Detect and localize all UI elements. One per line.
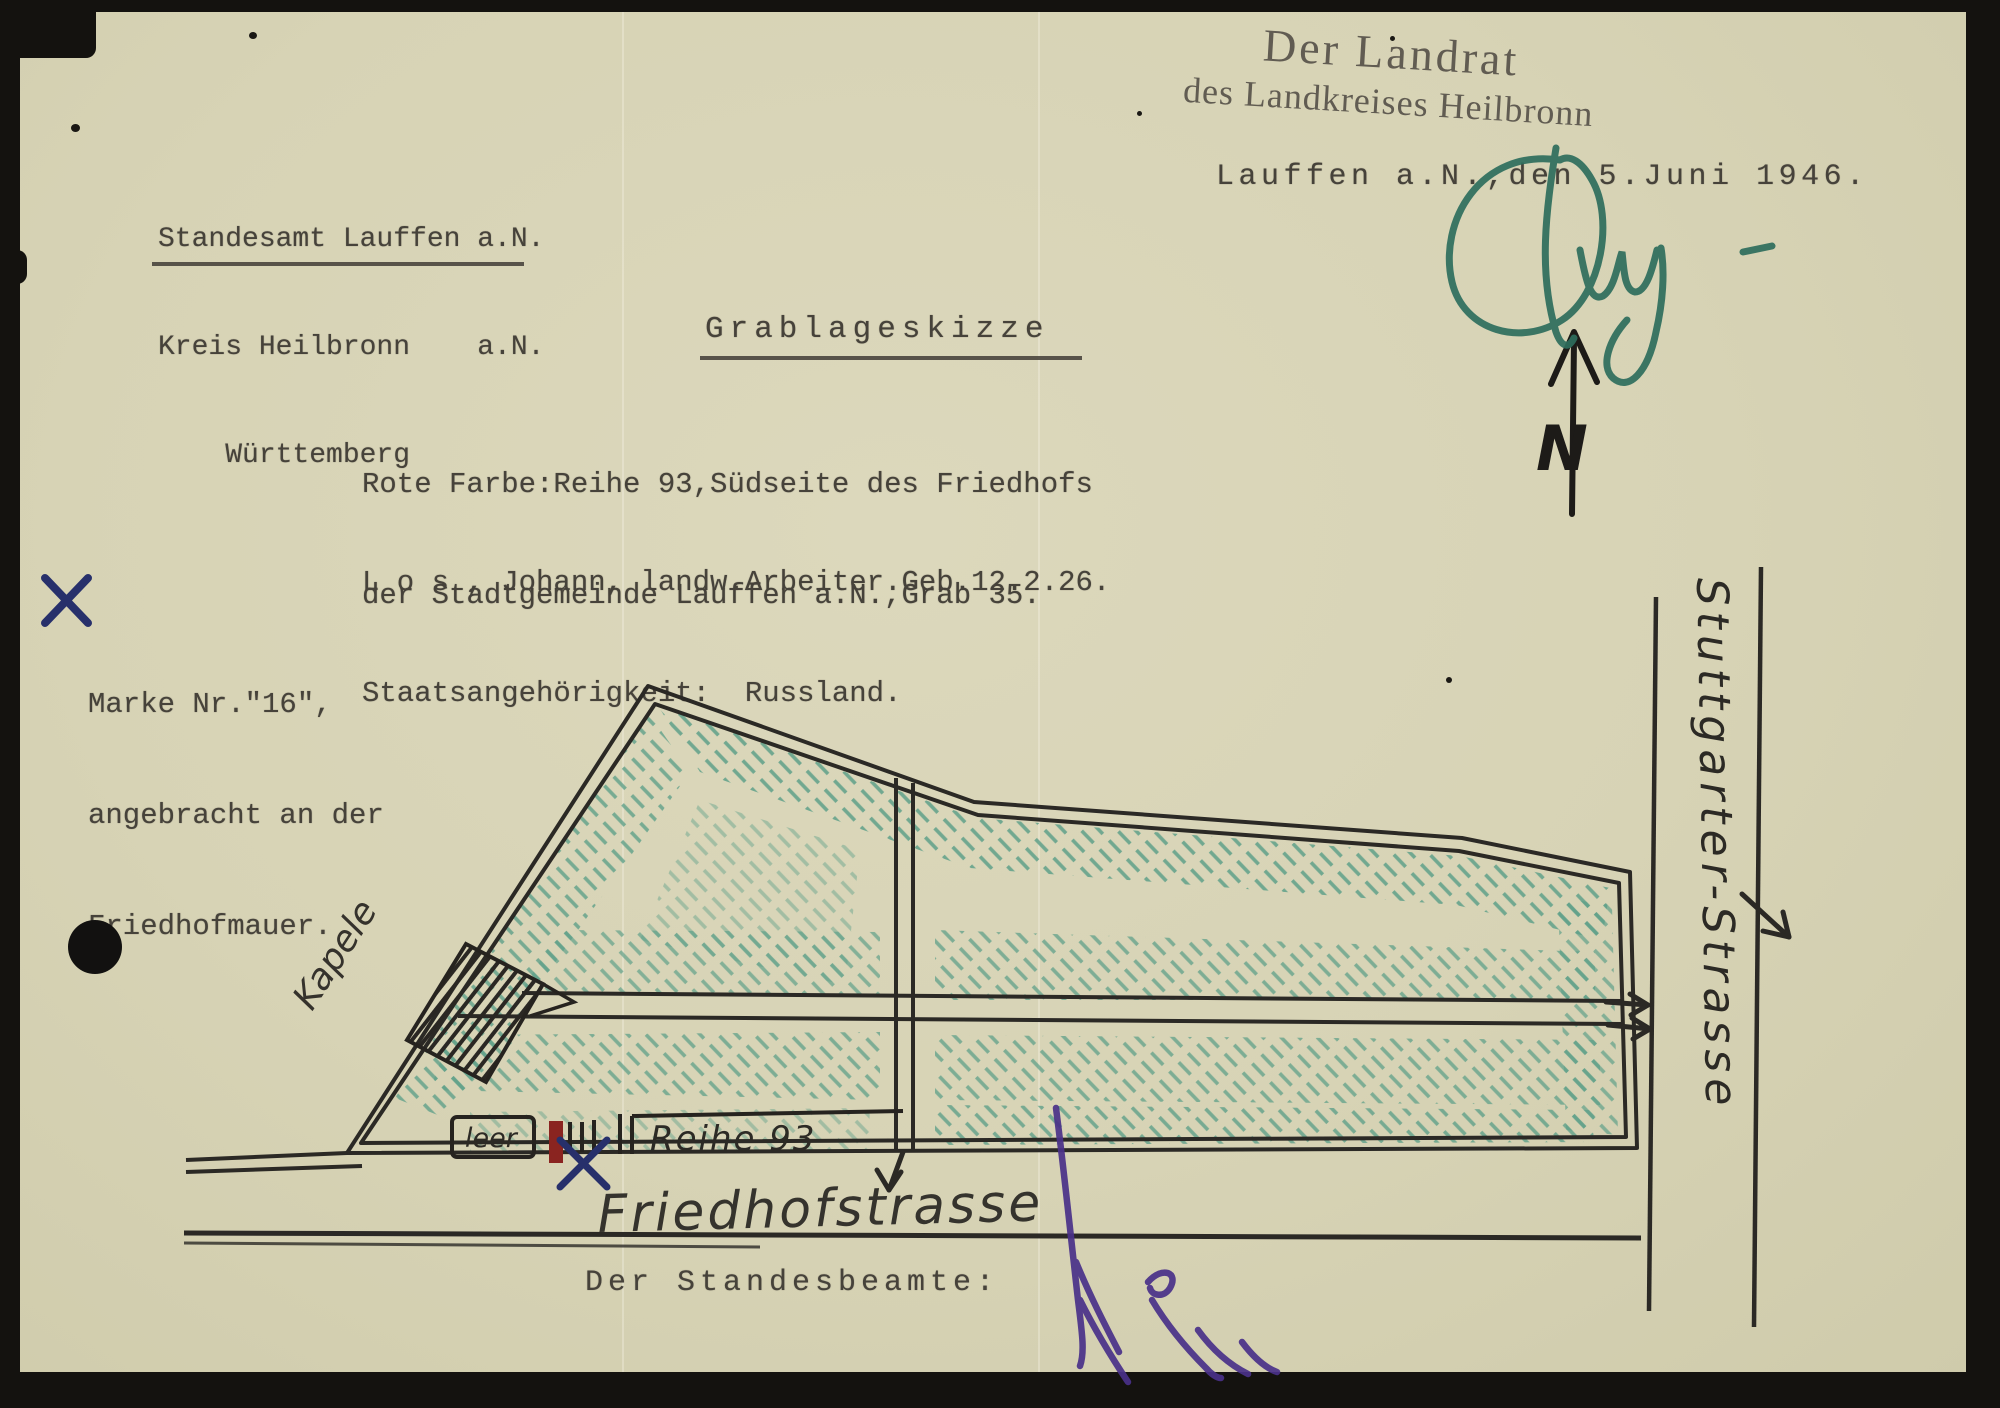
grave-location-sketch: Kapele leer Reihe 93 Friedhofstrasse Stu… [0,0,2000,1408]
scanned-document: Standesamt Lauffen a.N. Kreis Heilbronn … [0,0,2000,1408]
vacant-plot-label: leer [465,1123,519,1154]
street-label-stuttgarter-strasse: Stuttgarter-Strasse [1686,577,1746,1111]
margin-x-marker [45,578,88,623]
hole-punch [68,920,122,974]
green-hatching [395,706,1618,1152]
chapel-label: Kapele [285,893,386,1017]
row-label: Reihe 93 [650,1119,817,1159]
north-arrow: N [1536,332,1597,514]
street-label-friedhofstrasse: Friedhofstrasse [597,1173,1044,1245]
green-signature [1449,148,1772,382]
north-label: N [1536,412,1588,485]
